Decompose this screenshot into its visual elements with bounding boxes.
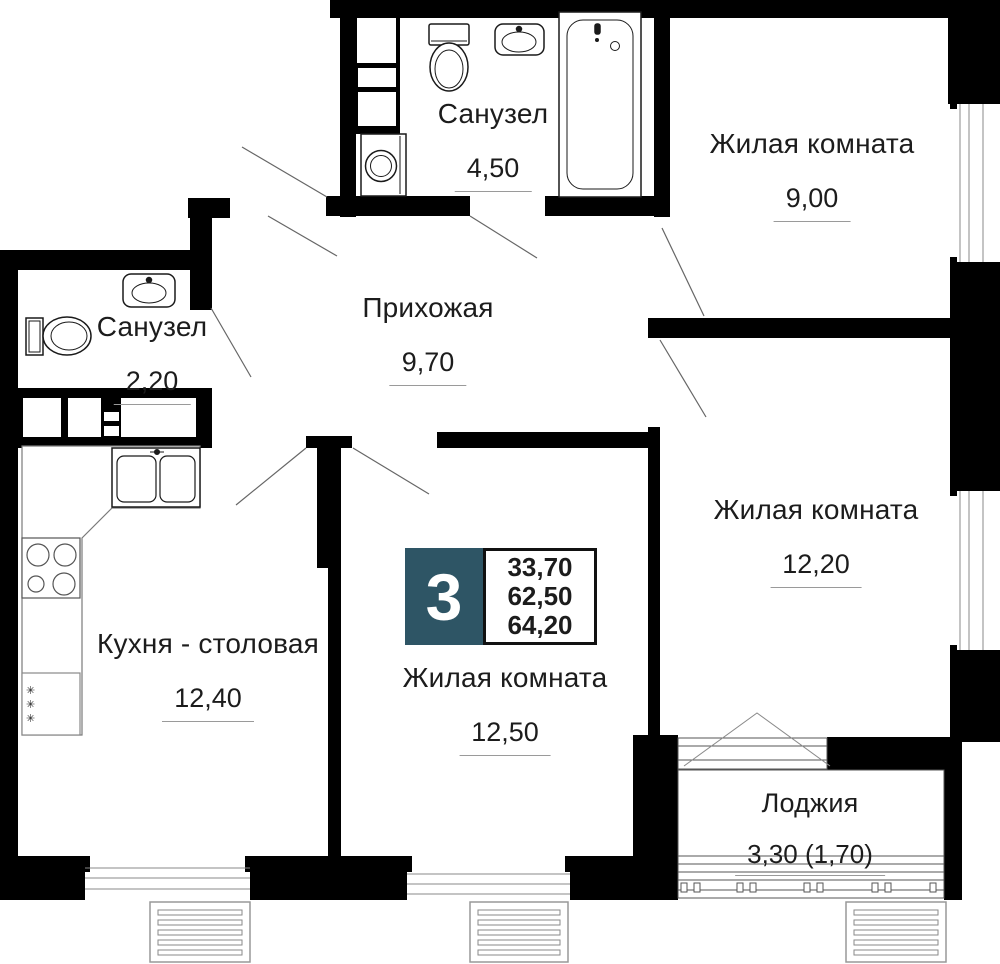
room-name: Жилая комната — [403, 662, 608, 694]
room-label-hallway: Прихожая 9,70 — [362, 292, 493, 386]
room-label-loggia: Лоджия 3,30 (1,70) — [735, 788, 885, 876]
balcony-door — [678, 713, 830, 769]
room-area: 12,40 — [162, 683, 254, 722]
window-glazing — [85, 868, 570, 894]
room-label-bathroom-top: Санузел 4,50 — [438, 98, 548, 192]
room-area: 9,00 — [774, 183, 851, 222]
living-area-value: 33,70 — [507, 553, 572, 582]
room-name: Жилая комната — [714, 494, 919, 526]
room-area: 12,20 — [770, 549, 862, 588]
toilet-icon — [26, 317, 91, 355]
room-area: 4,50 — [455, 153, 532, 192]
room-area: 9,70 — [390, 347, 467, 386]
snowflake-icon: ✳ — [26, 684, 35, 698]
window-glazing — [960, 104, 983, 650]
room-label-bedroom-9: Жилая комната 9,00 — [710, 128, 915, 222]
snowflake-icon: ✳ — [26, 712, 35, 726]
room-area: 12,50 — [459, 717, 551, 756]
stove-icon — [22, 538, 80, 598]
room-label-bedroom-122: Жилая комната 12,20 — [714, 494, 919, 588]
apartment-badge: 3 33,70 62,50 64,20 — [405, 548, 597, 645]
room-label-kitchen: Кухня - столовая 12,40 — [97, 628, 319, 722]
room-name: Прихожая — [362, 292, 493, 324]
rooms-count: 3 — [405, 548, 483, 645]
room-name: Лоджия — [735, 788, 885, 819]
basket — [150, 902, 250, 962]
room-name: Жилая комната — [710, 128, 915, 160]
kitchen-sink-icon — [112, 448, 200, 507]
room-name: Кухня - столовая — [97, 628, 319, 660]
room-area: 3,30 (1,70) — [735, 839, 885, 876]
sink-icon — [495, 24, 544, 55]
total-area-value: 64,20 — [507, 611, 572, 640]
snowflake-icon: ✳ — [26, 698, 35, 712]
toilet-icon — [429, 24, 469, 91]
room-label-bedroom-125: Жилая комната 12,50 — [403, 662, 608, 756]
washing-machine-icon — [361, 134, 406, 196]
room-label-bathroom-left: Санузел 2,20 — [97, 311, 207, 405]
basket — [846, 902, 946, 962]
fridge-snowflakes-icon: ✳ ✳ ✳ — [26, 684, 35, 726]
room-area: 2,20 — [114, 366, 191, 405]
basket — [470, 902, 568, 962]
sink-icon — [123, 274, 175, 307]
areas-box: 33,70 62,50 64,20 — [483, 548, 597, 645]
room-name: Санузел — [97, 311, 207, 343]
area-without-loggia-value: 62,50 — [507, 582, 572, 611]
room-name: Санузел — [438, 98, 548, 130]
floor-plan: ✳ ✳ ✳ Санузел 4,50 Жилая комната 9,00 Пр… — [0, 0, 1000, 964]
bathtub-icon — [559, 12, 641, 197]
